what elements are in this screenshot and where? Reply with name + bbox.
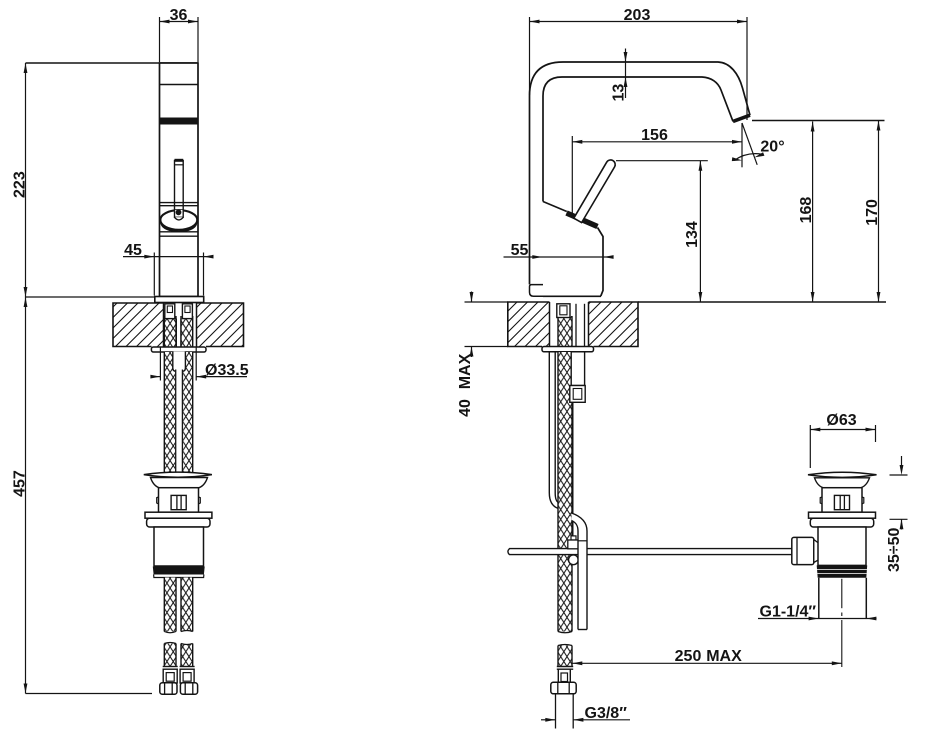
svg-text:G3/8″: G3/8″ [585, 705, 628, 722]
svg-text:Ø63: Ø63 [826, 412, 856, 429]
svg-text:20°: 20° [760, 139, 784, 156]
svg-text:G1-1/4″: G1-1/4″ [760, 604, 817, 621]
svg-text:Ø33.5: Ø33.5 [205, 362, 249, 379]
svg-text:134: 134 [684, 221, 701, 248]
svg-text:457: 457 [12, 470, 29, 497]
svg-text:203: 203 [624, 7, 651, 24]
svg-text:MAX: MAX [457, 353, 474, 389]
svg-text:35÷50: 35÷50 [886, 528, 903, 572]
svg-text:170: 170 [864, 199, 881, 226]
svg-text:250: 250 [675, 648, 702, 665]
svg-text:223: 223 [12, 171, 29, 198]
svg-text:168: 168 [798, 197, 815, 224]
svg-text:13: 13 [610, 84, 627, 102]
svg-text:55: 55 [511, 242, 529, 259]
svg-text:MAX: MAX [706, 648, 742, 665]
svg-text:40: 40 [457, 399, 474, 417]
svg-text:36: 36 [170, 7, 188, 24]
svg-text:156: 156 [641, 127, 668, 144]
svg-text:45: 45 [124, 242, 142, 259]
